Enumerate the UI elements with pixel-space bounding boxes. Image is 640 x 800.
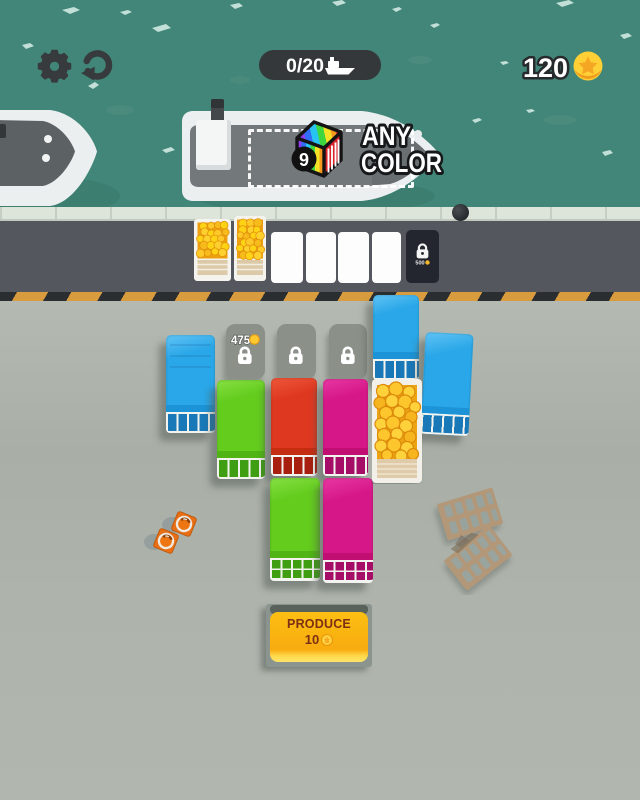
svg-text:0/20: 0/20 bbox=[286, 55, 324, 77]
svg-text:120: 120 bbox=[523, 53, 568, 83]
svg-text:475: 475 bbox=[231, 335, 251, 347]
svg-text:500: 500 bbox=[415, 261, 424, 267]
svg-text:ANY: ANY bbox=[362, 121, 411, 151]
svg-text:9: 9 bbox=[299, 150, 309, 170]
svg-text:COLOR: COLOR bbox=[361, 148, 442, 178]
